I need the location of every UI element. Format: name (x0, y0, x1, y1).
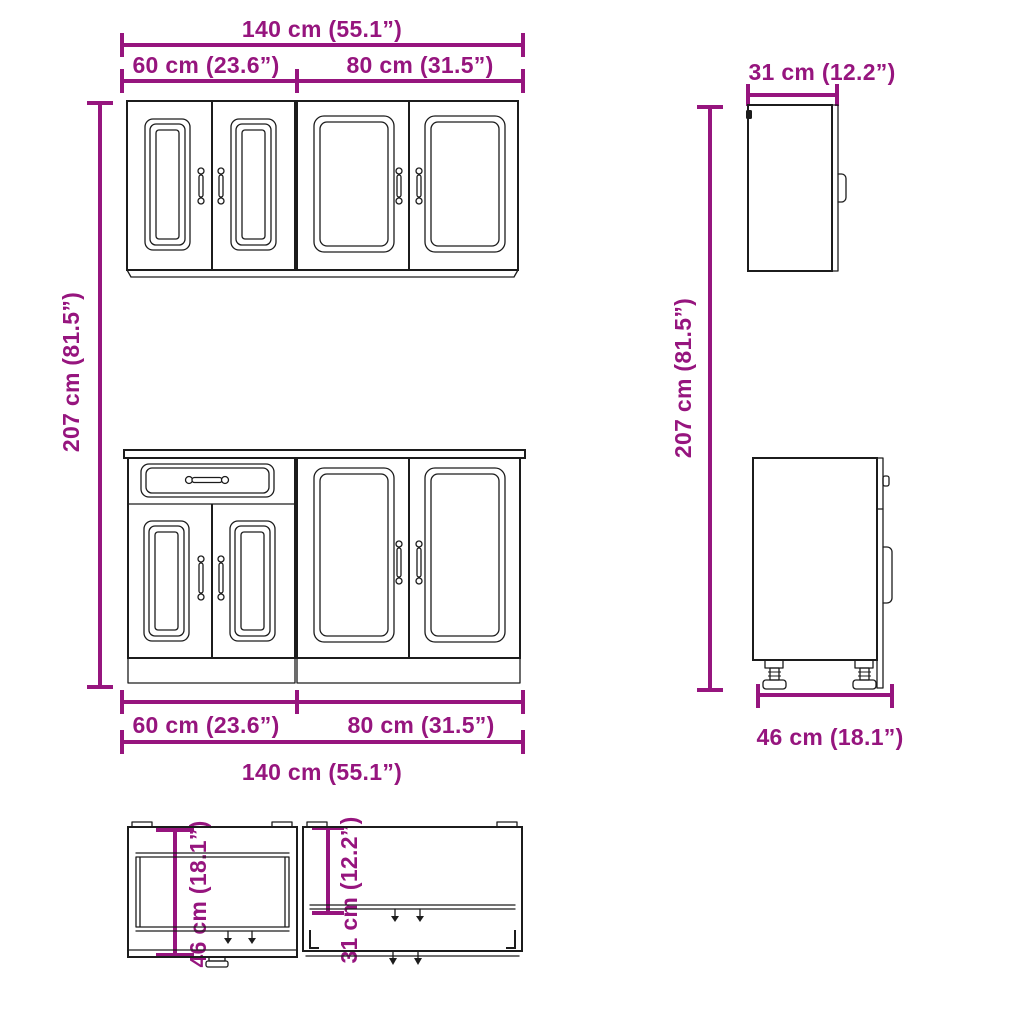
base-door-panel (230, 521, 275, 641)
base-door-panel (425, 468, 505, 642)
base-cabinet-side-view (753, 458, 892, 689)
adjustable-foot (414, 951, 422, 965)
height-dimension-right: 207 cm (81.5”) (670, 107, 723, 690)
base-front-width-dimensions: 60 cm (23.6”) 80 cm (31.5”) 140 cm (55.1… (122, 690, 523, 785)
dimension-diagram: 140 cm (55.1”) 60 cm (23.6”) 80 cm (31.5… (0, 0, 1024, 1024)
dim-label-total-width-bottom: 140 cm (55.1”) (242, 759, 402, 785)
base-side-body (753, 458, 877, 660)
wall-cabinets-front-view (127, 101, 518, 277)
adjustable-foot (853, 660, 876, 689)
dim-label-total-width-top: 140 cm (55.1”) (242, 16, 402, 42)
dim-label-base-depth: 46 cm (18.1”) (756, 724, 903, 750)
base-door-panel (314, 468, 394, 642)
door-handle (218, 556, 224, 600)
dimension-line-height-right (697, 107, 723, 690)
wall-side-depth-dimension: 31 cm (12.2”) (748, 59, 896, 106)
base-side-depth-dimension: 46 cm (18.1”) (756, 684, 903, 750)
dim-label-right-width-bottom: 80 cm (31.5”) (347, 712, 494, 738)
base-top-outline (128, 827, 297, 957)
hinge-mark (248, 931, 256, 944)
door-handle (883, 547, 892, 603)
plinth-right (297, 658, 520, 683)
hinge-mark (391, 909, 399, 922)
dim-label-left-width-bottom: 60 cm (23.6”) (132, 712, 279, 738)
corner-bracket (310, 930, 319, 948)
wall-right-unit-outline (297, 101, 518, 270)
wall-door-panel (231, 119, 276, 250)
height-dimension-left: 207 cm (81.5”) (58, 103, 113, 687)
door-handle (218, 168, 224, 204)
base-top-depth-dimension: 46 cm (18.1”) (156, 820, 211, 967)
worktop (124, 450, 525, 458)
corner-bracket (506, 930, 515, 948)
drawer-handle (186, 477, 229, 484)
wall-cabinet-bottom-strip (127, 270, 518, 277)
adjustable-foot (389, 951, 397, 965)
wall-door-panel (425, 116, 505, 252)
hinge-mark (416, 909, 424, 922)
wall-top-depth-dimension: 31 cm (12.2”) (312, 816, 362, 963)
dim-label-right-width-top: 80 cm (31.5”) (346, 52, 493, 78)
hinge-mark (746, 110, 752, 119)
door-handle (416, 541, 422, 584)
drawer-handle-side (883, 476, 889, 486)
adjustable-foot (763, 660, 786, 689)
dim-label-height-right: 207 cm (81.5”) (670, 298, 696, 458)
dimension-line-units-bottom (122, 690, 523, 714)
base-cabinet-top-view (128, 822, 297, 967)
door-handle (396, 541, 402, 584)
base-top-inner-frame (136, 853, 289, 931)
base-cabinets-front-view (124, 450, 525, 683)
diagram-canvas: 140 cm (55.1”) 60 cm (23.6”) 80 cm (31.5… (0, 0, 1024, 1024)
wall-side-body (748, 105, 832, 271)
door-handle (396, 168, 402, 204)
door-handle (198, 168, 204, 204)
door-handle (198, 556, 204, 600)
wall-front-width-dimensions: 140 cm (55.1”) 60 cm (23.6”) 80 cm (31.5… (122, 16, 523, 93)
hinge-mark (224, 931, 232, 944)
dim-label-left-width-top: 60 cm (23.6”) (132, 52, 279, 78)
door-handle (416, 168, 422, 204)
dimension-line-height-left (87, 103, 113, 687)
base-door-panel (144, 521, 189, 641)
door-handle (838, 174, 846, 202)
dim-label-wall-top-depth: 31 cm (12.2”) (336, 816, 362, 963)
wall-door-panel (314, 116, 394, 252)
dimension-line-base-depth (758, 684, 892, 708)
wall-door-panel (145, 119, 190, 250)
wall-cabinet-side-view (746, 105, 846, 271)
dimension-line-wall-depth (748, 84, 837, 106)
plinth-left (128, 658, 295, 683)
dim-label-base-top-depth: 46 cm (18.1”) (185, 820, 211, 967)
dim-label-wall-depth: 31 cm (12.2”) (748, 59, 895, 85)
dim-label-height-left: 207 cm (81.5”) (58, 292, 84, 452)
